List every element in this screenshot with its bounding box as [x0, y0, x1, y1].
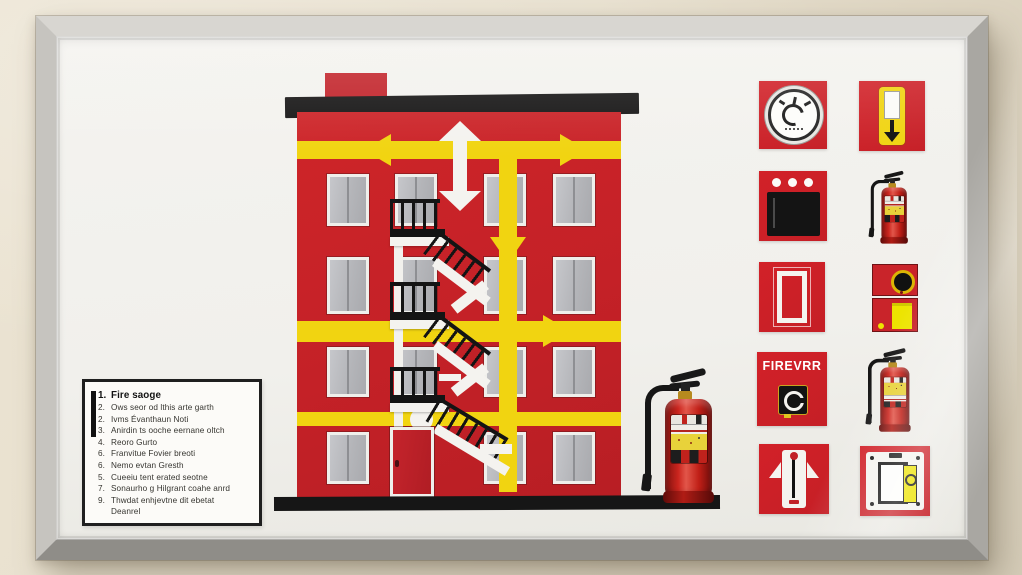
down-arrow-icon	[884, 132, 900, 142]
window	[327, 347, 369, 397]
fire-alarm-panel-sign	[759, 171, 827, 241]
fire-extinguisher-illustration	[642, 363, 722, 511]
route-arrow-down	[490, 237, 526, 263]
poster-frame: 1.Fire saoge 2.Ows seor od lthis arte ga…	[36, 16, 988, 560]
wall-background: 1.Fire saoge 2.Ows seor od lthis arte ga…	[0, 0, 1022, 575]
arrow-fluke-left	[769, 462, 781, 478]
extinguisher-base	[879, 424, 911, 431]
evacuation-down-arrow-sign	[859, 81, 925, 151]
legend-item: 2.Ivms Évanthaun Noti	[98, 414, 253, 426]
extinguisher-label	[671, 415, 707, 463]
legend-item: 7.Sonaurho g Hilgrant coahe anrd	[98, 483, 253, 495]
window	[327, 432, 369, 484]
fire-alarm-call-point-sign: FIREVRR	[757, 352, 827, 426]
hose-reel-compartment	[872, 264, 918, 296]
legend-item: 5.Cueeiu tent erated seotne	[98, 472, 253, 484]
legend-accent-bar	[91, 391, 96, 437]
extinguisher-base	[663, 491, 714, 503]
gauge-dial-icon	[768, 89, 820, 141]
indicator-dot	[804, 178, 813, 187]
door-outline-icon	[777, 271, 807, 323]
indicator-dot	[772, 178, 781, 187]
arrow-badge	[879, 87, 905, 145]
firevrr-label: FIREVRR	[757, 359, 827, 373]
exit-door	[390, 427, 434, 497]
fire-extinguisher-photo-2	[866, 345, 916, 437]
extinguisher-label	[885, 196, 904, 222]
window	[327, 257, 369, 314]
legend-item: 1.Fire saoge	[98, 389, 253, 402]
call-point-icon	[778, 385, 808, 415]
alarm-switch-panel-sign	[860, 446, 930, 516]
standpipe-riser-sign	[759, 444, 829, 514]
fire-hose-cabinet-sign	[872, 264, 918, 332]
hose-reel-icon	[891, 270, 915, 294]
escape-railing	[390, 367, 440, 398]
escape-railing	[390, 199, 440, 232]
valve-compartment	[872, 298, 918, 332]
alarm-bell-gauge-sign	[759, 81, 827, 149]
window	[553, 347, 595, 397]
window	[553, 174, 595, 226]
fire-safety-poster: 1.Fire saoge 2.Ows seor od lthis arte ga…	[57, 37, 967, 539]
extinguisher-base	[880, 237, 908, 243]
exit-door-outline-sign	[759, 262, 825, 332]
legend-item-continuation: Deanrel	[98, 506, 253, 518]
route-arrow-right-2	[543, 315, 570, 347]
extinguisher-label	[884, 377, 906, 407]
panel-screen	[767, 192, 820, 236]
legend-item: 6.Franvitue Fovier breoti	[98, 448, 253, 460]
legend-item: 9.Thwdat enhjevtne dit ebetat	[98, 495, 253, 507]
arrow-fluke-right	[807, 462, 819, 478]
fire-extinguisher-photo	[869, 168, 912, 248]
vertical-double-arrow	[439, 121, 481, 211]
route-arrow-right	[560, 134, 587, 166]
switch-panel-icon	[866, 452, 924, 510]
window	[553, 257, 595, 314]
legend-box: 1.Fire saoge 2.Ows seor od lthis arte ga…	[82, 379, 262, 526]
cabinet-door-icon	[892, 303, 912, 329]
legend-item: 6.Nemo evtan Gresth	[98, 460, 253, 472]
window	[327, 174, 369, 226]
escape-railing	[390, 282, 440, 315]
indicator-dot	[788, 178, 797, 187]
legend-item: 4.Reoro Gurto	[98, 437, 253, 449]
route-arrow-left	[364, 134, 391, 166]
legend-item: 2.Ows seor od lthis arte garth	[98, 402, 253, 414]
legend-item: 3.Anirdin ts ooche eernane oltch	[98, 425, 253, 437]
window	[553, 432, 595, 484]
stair-step	[439, 374, 461, 381]
stair-landing-bottom	[480, 444, 512, 454]
